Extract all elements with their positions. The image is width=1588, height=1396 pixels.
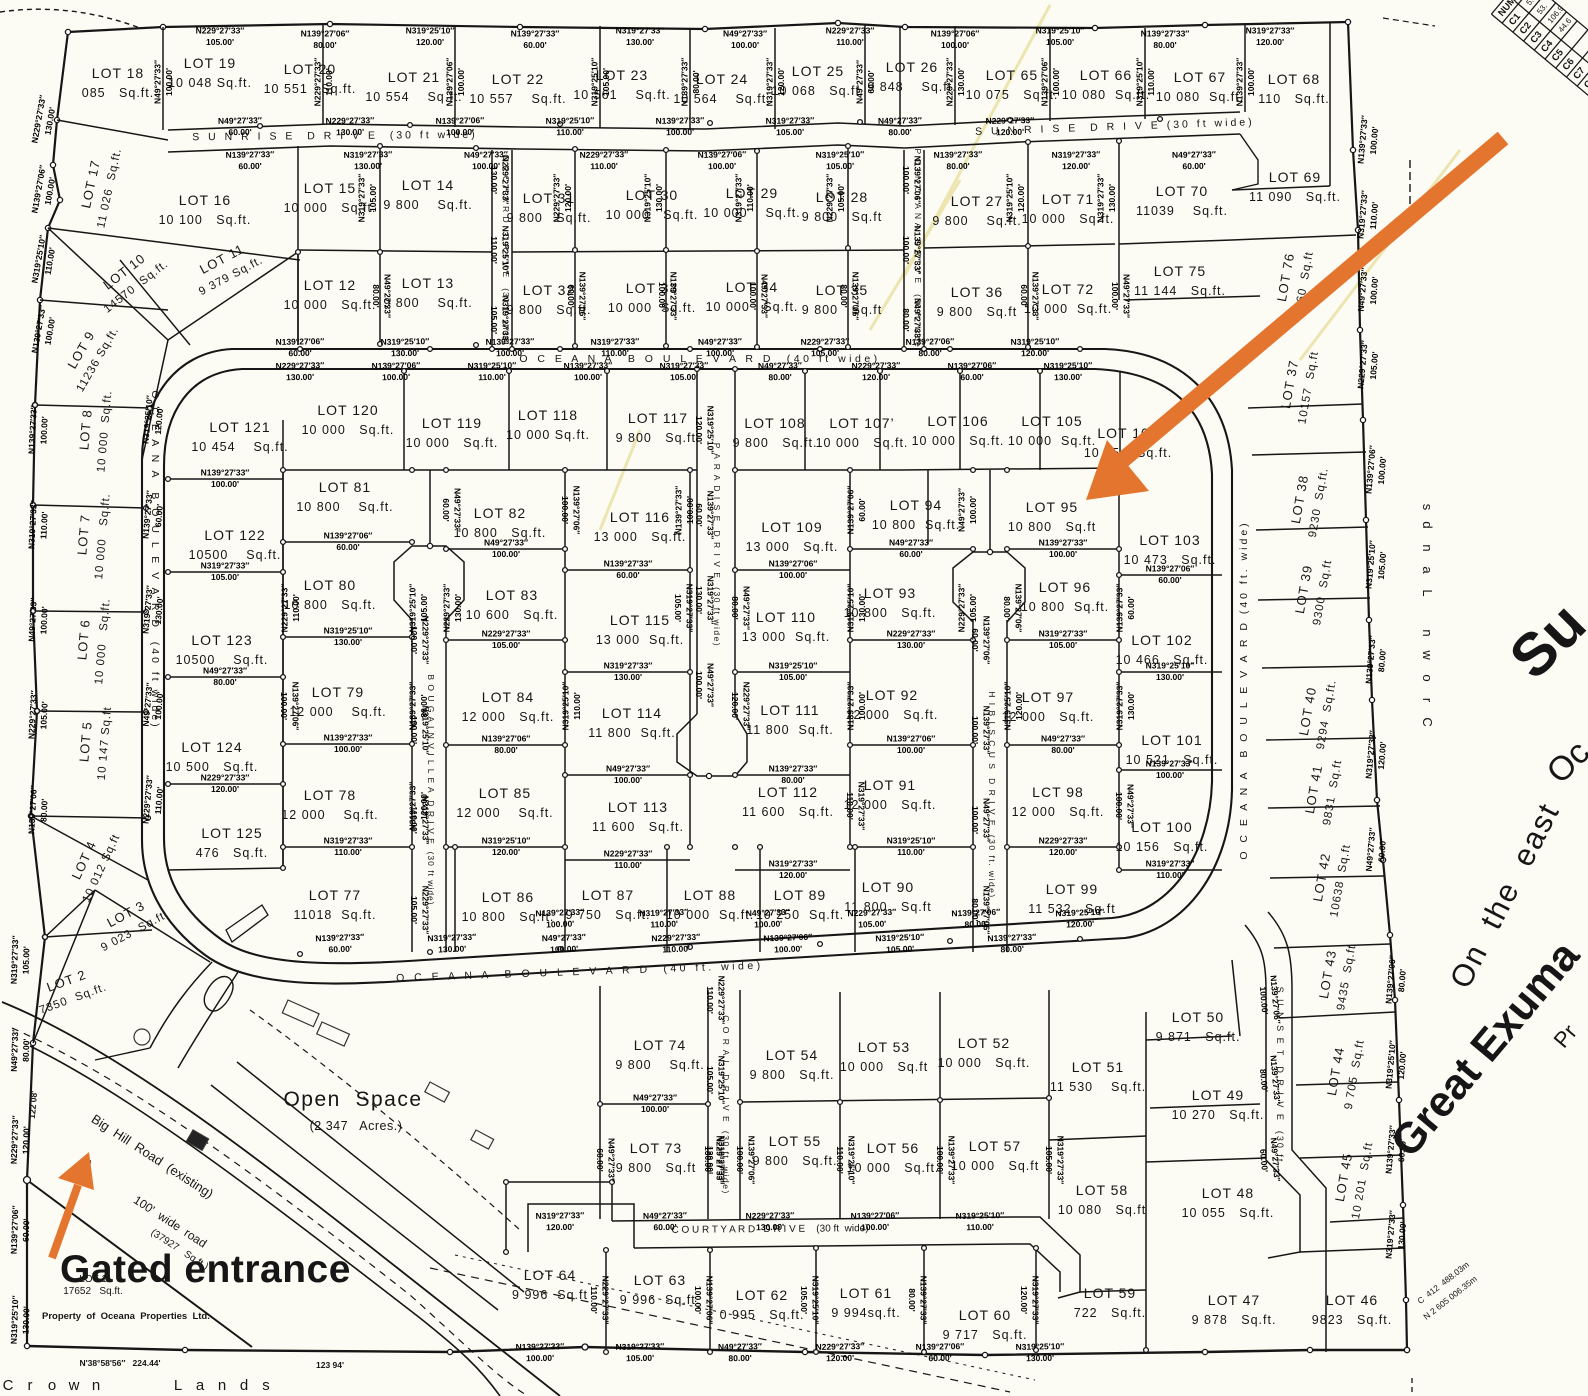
svg-text:80.00': 80.00' xyxy=(494,745,517,755)
svg-text:10 000 Sq.ft.: 10 000 Sq.ft. xyxy=(302,423,395,437)
svg-text:LOT 108: LOT 108 xyxy=(744,415,805,431)
svg-text:N139°27′33″: N139°27′33″ xyxy=(515,1341,564,1352)
svg-text:11 090 Sq.ft.: 11 090 Sq.ft. xyxy=(1249,190,1341,204)
svg-text:LOT 13: LOT 13 xyxy=(402,275,454,291)
svg-text:N319°27′33″: N319°27′33″ xyxy=(324,836,373,846)
svg-text:476 Sq.ft.: 476 Sq.ft. xyxy=(196,846,268,860)
svg-text:N319°25′10″: N319°25′10″ xyxy=(955,1210,1004,1221)
svg-text:N319°25′10″: N319°25′10″ xyxy=(1015,1341,1064,1352)
svg-text:LOT 12: LOT 12 xyxy=(304,277,356,293)
svg-text:LOT 112: LOT 112 xyxy=(758,784,818,800)
svg-text:LOT 80: LOT 80 xyxy=(304,577,356,593)
svg-text:LOT 50: LOT 50 xyxy=(1172,1009,1224,1025)
svg-text:120.00': 120.00' xyxy=(416,37,444,47)
svg-text:LCT 98: LCT 98 xyxy=(1032,784,1084,800)
svg-text:N229°27′33″: N229°27′33″ xyxy=(715,1136,725,1185)
svg-text:N229°27′33″: N229°27′33″ xyxy=(800,336,849,347)
svg-text:LOT 86: LOT 86 xyxy=(482,889,534,905)
svg-text:130.00': 130.00' xyxy=(438,944,466,955)
svg-text:N49°27′33″: N49°27′33″ xyxy=(607,1138,617,1182)
svg-text:N'38°58'56″ 224.44': N'38°58'56″ 224.44' xyxy=(79,1358,160,1368)
svg-text:105.00': 105.00' xyxy=(886,944,914,955)
svg-text:80.00': 80.00' xyxy=(901,308,911,331)
svg-text:N229°27′33″: N229°27′33″ xyxy=(313,58,323,107)
svg-text:10 500 Sq.ft.: 10 500 Sq.ft. xyxy=(166,760,259,774)
svg-text:LOT 107’: LOT 107’ xyxy=(829,415,894,431)
svg-text:N139°27′33″: N139°27′33″ xyxy=(1031,272,1041,321)
svg-text:10 000 Sq.ft: 10 000 Sq.ft xyxy=(840,1060,928,1074)
svg-text:60.00': 60.00' xyxy=(1258,1148,1270,1172)
svg-text:L: L xyxy=(174,1377,182,1394)
svg-text:80.00': 80.00' xyxy=(1258,1068,1270,1092)
svg-text:LOT 125: LOT 125 xyxy=(201,825,262,841)
svg-text:LOT 22: LOT 22 xyxy=(492,71,544,87)
svg-text:60.00': 60.00' xyxy=(288,348,311,358)
svg-text:LOT 99: LOT 99 xyxy=(1046,881,1098,897)
svg-text:110.00': 110.00' xyxy=(590,161,618,171)
svg-text:110.00': 110.00' xyxy=(745,184,755,212)
svg-text:N139°27′33″: N139°27′33″ xyxy=(315,932,364,944)
svg-text:120.00': 120.00' xyxy=(776,68,786,96)
svg-text:80.00': 80.00' xyxy=(946,161,969,171)
svg-text:9 800 Sq.ft.: 9 800 Sq.ft. xyxy=(383,296,472,310)
svg-text:LOT 101: LOT 101 xyxy=(1141,732,1202,748)
svg-text:LOT 118: LOT 118 xyxy=(518,407,578,423)
svg-text:60.00': 60.00' xyxy=(441,498,451,521)
svg-text:80.00': 80.00' xyxy=(964,919,988,930)
svg-text:60.00': 60.00' xyxy=(928,1353,951,1363)
svg-text:a: a xyxy=(196,1377,205,1394)
svg-text:n: n xyxy=(1420,629,1435,636)
svg-text:N319°25′10″: N319°25′10″ xyxy=(380,336,429,347)
svg-text:120.00': 120.00' xyxy=(492,847,520,857)
svg-text:100.00': 100.00' xyxy=(38,606,49,635)
svg-text:C: C xyxy=(3,1377,14,1394)
svg-text:120.00': 120.00' xyxy=(826,1353,854,1363)
svg-text:r: r xyxy=(28,1377,33,1394)
svg-text:130.00': 130.00' xyxy=(286,372,314,382)
svg-text:LOT 60: LOT 60 xyxy=(959,1307,1011,1323)
svg-text:60.00': 60.00' xyxy=(523,40,546,50)
svg-text:60.00': 60.00' xyxy=(336,542,359,552)
svg-text:N139°27′06″: N139°27′06″ xyxy=(851,272,861,321)
svg-text:13 000 Sq.ft.: 13 000 Sq.ft. xyxy=(594,530,687,544)
svg-text:N229°27′33″: N229°27′33″ xyxy=(604,849,653,859)
svg-text:100.00': 100.00' xyxy=(779,570,807,580)
svg-text:C: C xyxy=(1420,717,1435,726)
svg-text:105.00': 105.00' xyxy=(206,37,234,47)
svg-text:N319°25′10″: N319°25′10″ xyxy=(1135,58,1145,107)
svg-text:9 800 Sq.ft.: 9 800 Sq.ft. xyxy=(615,1058,704,1072)
svg-text:100.00': 100.00' xyxy=(857,692,867,720)
svg-text:N49°27′33″: N49°27′33″ xyxy=(153,60,163,104)
svg-text:130.00': 130.00' xyxy=(336,127,364,137)
svg-text:10 557 Sq.ft.: 10 557 Sq.ft. xyxy=(469,92,566,106)
svg-text:N49°27′33″: N49°27′33″ xyxy=(9,1028,21,1072)
svg-text:105.00': 105.00' xyxy=(601,68,611,96)
svg-text:100.00': 100.00' xyxy=(1051,68,1061,96)
svg-text:11 800 Sq.ft.: 11 800 Sq.ft. xyxy=(588,726,675,740)
svg-text:LOT 51: LOT 51 xyxy=(1072,1059,1124,1075)
svg-text:60.00': 60.00' xyxy=(153,503,165,527)
svg-text:N319°27′33″: N319°27′33″ xyxy=(408,782,418,831)
svg-text:LOT 91: LOT 91 xyxy=(864,777,916,793)
svg-text:w: w xyxy=(68,1377,80,1394)
svg-text:N319°25′10″: N319°25′10″ xyxy=(501,226,511,275)
svg-text:105.00': 105.00' xyxy=(670,372,698,382)
svg-text:100.00': 100.00' xyxy=(861,1222,889,1232)
svg-text:9 996 Sq.ft.: 9 996 Sq.ft. xyxy=(620,1293,700,1307)
svg-text:11018 Sq.ft.: 11018 Sq.ft. xyxy=(294,908,377,922)
svg-text:N139°27′06″: N139°27′06″ xyxy=(482,734,531,744)
svg-text:9 717 Sq.ft.: 9 717 Sq.ft. xyxy=(943,1328,1028,1342)
svg-text:100.00': 100.00' xyxy=(546,919,574,930)
svg-text:80.00': 80.00' xyxy=(1396,968,1408,992)
svg-text:60.00': 60.00' xyxy=(616,570,639,580)
svg-text:12 000 Sq.ft.: 12 000 Sq.ft. xyxy=(1012,805,1105,819)
svg-text:N229°27′33″: N229°27′33″ xyxy=(442,584,452,633)
svg-text:100.00': 100.00' xyxy=(941,40,969,50)
svg-text:LOT 88: LOT 88 xyxy=(684,887,736,903)
svg-text:N319°27′33″: N319°27′33″ xyxy=(1056,1136,1066,1185)
svg-text:60.00': 60.00' xyxy=(328,944,352,955)
svg-text:LOT 123: LOT 123 xyxy=(191,632,252,648)
svg-text:N49°27′33″: N49°27′33″ xyxy=(203,666,247,676)
svg-text:100.00': 100.00' xyxy=(1246,68,1256,96)
svg-text:N139°27′06″: N139°27′06″ xyxy=(951,907,1000,919)
svg-text:N139°27′33″: N139°27′33″ xyxy=(1039,538,1088,548)
svg-text:N139°27′33″: N139°27′33″ xyxy=(511,29,560,39)
svg-text:110.00': 110.00' xyxy=(835,1146,845,1174)
svg-text:N319°27′33″: N319°27′33″ xyxy=(535,1210,584,1221)
svg-text:N319°27′33″: N319°27′33″ xyxy=(1039,629,1088,639)
svg-text:105.00': 105.00' xyxy=(968,594,978,622)
svg-text:LOT 106: LOT 106 xyxy=(927,413,988,429)
svg-text:100.00': 100.00' xyxy=(694,671,704,699)
svg-text:N139°27′33″: N139°27′33″ xyxy=(225,149,274,160)
svg-text:80.00': 80.00' xyxy=(907,1288,917,1311)
svg-text:N139°27′06″: N139°27′06″ xyxy=(913,156,923,205)
svg-text:LOT 83: LOT 83 xyxy=(486,587,538,603)
svg-text:100.00': 100.00' xyxy=(968,496,978,524)
svg-text:100.00': 100.00' xyxy=(456,68,466,96)
svg-text:120.00': 120.00' xyxy=(862,372,890,382)
svg-text:N139°27′06″: N139°27′06″ xyxy=(578,272,588,321)
svg-text:N139°27′33″: N139°27′33″ xyxy=(680,58,690,107)
svg-text:N319°25′10″: N319°25′10″ xyxy=(1010,336,1059,347)
svg-text:N319°25′10″: N319°25′10″ xyxy=(846,584,856,633)
svg-text:LOT 15: LOT 15 xyxy=(304,180,356,196)
svg-text:120.00': 120.00' xyxy=(563,184,573,212)
svg-text:10 473 Sq.ft.: 10 473 Sq.ft. xyxy=(1124,553,1217,567)
svg-text:0 995 Sq.ft.: 0 995 Sq.ft. xyxy=(720,1308,805,1322)
svg-text:130.00': 130.00' xyxy=(956,68,966,96)
svg-text:100.00': 100.00' xyxy=(901,236,911,264)
svg-text:N229°27′33″: N229°27′33″ xyxy=(825,174,835,223)
svg-text:N139°27′33″: N139°27′33″ xyxy=(324,733,373,743)
svg-text:N139°27′06″: N139°27′06″ xyxy=(371,360,420,371)
svg-text:LOT 52: LOT 52 xyxy=(958,1035,1010,1051)
svg-text:N139°27′06″: N139°27′06″ xyxy=(1014,584,1024,633)
svg-text:N229°27′33″: N229°27′33″ xyxy=(847,907,896,919)
svg-text:11 600 Sq.ft.: 11 600 Sq.ft. xyxy=(592,820,684,834)
svg-text:60.00': 60.00' xyxy=(1126,596,1136,619)
svg-text:130.00': 130.00' xyxy=(453,594,463,622)
svg-text:120.00': 120.00' xyxy=(730,692,740,720)
svg-text:110.00': 110.00' xyxy=(478,372,506,382)
svg-text:N49°27′33″: N49°27′33″ xyxy=(218,115,262,126)
svg-text:LOT 116: LOT 116 xyxy=(610,509,670,525)
svg-text:N139°27′33″: N139°27′33″ xyxy=(913,226,923,275)
svg-text:N319°25′10″: N319°25′10″ xyxy=(1043,360,1092,371)
svg-text:110.00': 110.00' xyxy=(589,1286,599,1314)
svg-text:110.00': 110.00' xyxy=(966,1222,994,1232)
svg-text:60.00': 60.00' xyxy=(866,70,876,93)
svg-text:N229°27′33″: N229°27′33″ xyxy=(717,976,727,1025)
svg-text:LOT 110: LOT 110 xyxy=(756,609,816,625)
svg-text:100.00': 100.00' xyxy=(708,161,736,171)
svg-text:L: L xyxy=(1420,589,1435,596)
svg-text:100.00': 100.00' xyxy=(1156,770,1184,780)
svg-text:120.00': 120.00' xyxy=(1066,919,1094,930)
svg-text:N229°27′33″: N229°27′33″ xyxy=(651,932,700,944)
svg-text:LOT 113: LOT 113 xyxy=(608,799,668,815)
svg-text:N319°27′33″: N319°27′33″ xyxy=(1246,26,1295,36)
svg-text:LOT 109: LOT 109 xyxy=(761,519,822,535)
svg-text:s: s xyxy=(262,1377,270,1394)
svg-text:60.00': 60.00' xyxy=(1376,838,1388,862)
svg-text:100.00': 100.00' xyxy=(641,1104,669,1114)
svg-text:N319°25′10″: N319°25′10″ xyxy=(1003,682,1013,731)
svg-text:80.00': 80.00' xyxy=(1376,648,1388,672)
svg-text:120.00': 120.00' xyxy=(694,416,704,444)
svg-text:LOT 64: LOT 64 xyxy=(524,1267,576,1283)
svg-text:N319°27′33″: N319°27′33″ xyxy=(706,576,716,625)
svg-text:100.00': 100.00' xyxy=(774,944,802,955)
svg-text:60.00': 60.00' xyxy=(899,549,922,559)
svg-text:80.00': 80.00' xyxy=(313,40,336,50)
svg-text:N319°25′10″: N319°25′10″ xyxy=(875,932,924,944)
svg-text:11 800 Sq.ft.: 11 800 Sq.ft. xyxy=(746,723,833,737)
svg-text:100.00': 100.00' xyxy=(279,692,289,720)
svg-text:N319°27′33″: N319°27′33″ xyxy=(734,174,744,223)
svg-text:722 Sq.ft.: 722 Sq.ft. xyxy=(1074,1306,1146,1320)
svg-text:120.00': 120.00' xyxy=(1256,37,1284,47)
svg-text:N139°27′06″: N139°27′06″ xyxy=(435,115,484,126)
svg-text:N229°27′33″: N229°27′33″ xyxy=(280,584,290,633)
svg-text:N49°27′33″: N49°27′33″ xyxy=(1126,784,1136,828)
svg-text:N49°27′33″: N49°27′33″ xyxy=(718,1341,762,1352)
svg-text:110.00': 110.00' xyxy=(601,348,629,358)
svg-text:11 530 Sq.ft.: 11 530 Sq.ft. xyxy=(1050,1080,1146,1094)
svg-text:LOT 53: LOT 53 xyxy=(858,1039,910,1055)
svg-text:N49°27′33″: N49°27′33″ xyxy=(723,29,767,39)
svg-text:N319°27′33″: N319°27′33″ xyxy=(427,932,476,944)
svg-text:N229°27′33″: N229°27′33″ xyxy=(745,1210,794,1221)
svg-text:LOT 69: LOT 69 xyxy=(1269,169,1321,185)
svg-text:100.00': 100.00' xyxy=(211,479,239,489)
svg-text:100.00': 100.00' xyxy=(1049,549,1077,559)
svg-text:110.00': 110.00' xyxy=(38,511,49,539)
svg-text:10 270 Sq.ft.: 10 270 Sq.ft. xyxy=(1172,1108,1265,1122)
svg-text:60.00': 60.00' xyxy=(857,498,867,521)
svg-text:LOT 96: LOT 96 xyxy=(1039,579,1091,595)
svg-text:80.00': 80.00' xyxy=(839,284,849,307)
svg-text:LOT 71: LOT 71 xyxy=(1042,191,1094,207)
svg-text:60.00': 60.00' xyxy=(970,628,980,651)
svg-text:LOT 114: LOT 114 xyxy=(602,705,662,721)
svg-text:N229°27′33″: N229°27′33″ xyxy=(985,115,1034,126)
svg-text:9 800 Sq.ft: 9 800 Sq.ft xyxy=(616,1161,696,1175)
svg-text:123 94': 123 94' xyxy=(316,1360,344,1370)
svg-text:130.00': 130.00' xyxy=(1156,672,1184,682)
svg-text:LOT 73: LOT 73 xyxy=(630,1140,682,1156)
svg-text:N229°27′33″: N229°27′33″ xyxy=(887,629,936,639)
svg-text:130.00': 130.00' xyxy=(1126,692,1136,720)
svg-text:LOT 72: LOT 72 xyxy=(1042,281,1094,297)
svg-text:N139°27′06″: N139°27′06″ xyxy=(572,486,582,535)
svg-text:LOT 59: LOT 59 xyxy=(1084,1285,1136,1301)
svg-text:10 466 Sq.ft.: 10 466 Sq.ft. xyxy=(1116,653,1209,667)
svg-text:105.00': 105.00' xyxy=(409,896,419,924)
svg-text:LOT 67: LOT 67 xyxy=(1174,69,1226,85)
svg-text:100.00': 100.00' xyxy=(550,944,578,955)
svg-text:N319°27′33″: N319°27′33″ xyxy=(1146,859,1195,869)
svg-text:10 055 Sq.ft.: 10 055 Sq.ft. xyxy=(1182,1206,1275,1220)
svg-text:105.00': 105.00' xyxy=(826,161,854,171)
svg-text:N319°25′10″: N319°25′10″ xyxy=(1055,907,1104,919)
svg-text:N229°27′33″: N229°27′33″ xyxy=(815,1341,864,1352)
svg-text:LOT 95: LOT 95 xyxy=(1026,499,1078,515)
svg-text:N49°27′33″: N49°27′33″ xyxy=(1122,274,1132,318)
svg-text:9 800 Sq.ft.: 9 800 Sq.ft. xyxy=(733,436,818,450)
svg-text:LOT 117: LOT 117 xyxy=(628,410,688,426)
svg-text:100.00': 100.00' xyxy=(706,348,734,358)
svg-text:LOT 56: LOT 56 xyxy=(867,1140,919,1156)
svg-text:a: a xyxy=(1420,566,1435,574)
svg-text:120.00': 120.00' xyxy=(1062,161,1090,171)
svg-text:80.00': 80.00' xyxy=(213,677,236,687)
svg-text:r: r xyxy=(1420,698,1435,703)
svg-text:n: n xyxy=(1420,544,1435,551)
svg-text:80.00': 80.00' xyxy=(768,372,791,382)
svg-text:105.00': 105.00' xyxy=(705,1066,715,1094)
svg-text:120.00': 120.00' xyxy=(211,784,239,794)
svg-text:60.00': 60.00' xyxy=(228,127,251,137)
svg-text:N139°27′06″: N139°27′06″ xyxy=(769,559,818,569)
svg-text:LOT 46: LOT 46 xyxy=(1326,1292,1378,1308)
svg-text:N139°27′33″: N139°27′33″ xyxy=(987,932,1036,944)
svg-text:n: n xyxy=(92,1377,100,1394)
svg-text:105.00': 105.00' xyxy=(836,184,846,212)
svg-text:N49°27′33″: N49°27′33″ xyxy=(383,274,393,318)
svg-text:13 000 Sq.ft.: 13 000 Sq.ft. xyxy=(596,633,684,647)
svg-text:N139°27′06″: N139°27′06″ xyxy=(324,531,373,541)
svg-text:100.00': 100.00' xyxy=(526,1353,554,1363)
svg-text:LOT 90: LOT 90 xyxy=(862,879,914,895)
svg-text:80.00': 80.00' xyxy=(1153,40,1176,50)
svg-text:130.00': 130.00' xyxy=(694,586,704,614)
svg-text:100.00': 100.00' xyxy=(164,68,174,96)
svg-text:N319°27′33″: N319°27′33″ xyxy=(590,336,639,347)
svg-text:120.00': 120.00' xyxy=(1049,847,1077,857)
svg-text:N49°27′33″: N49°27′33″ xyxy=(1041,734,1085,744)
svg-text:N319°25′10″: N319°25′10″ xyxy=(887,836,936,846)
svg-text:105.00': 105.00' xyxy=(211,572,239,582)
svg-text:N139°27′06″: N139°27′06″ xyxy=(763,932,812,944)
svg-text:100.00': 100.00' xyxy=(693,1286,703,1314)
svg-text:10 561 Sq.ft.: 10 561 Sq.ft. xyxy=(573,88,670,102)
svg-text:9 800 Sq.ft: 9 800 Sq.ft xyxy=(937,305,1017,319)
svg-text:120.00': 120.00' xyxy=(1021,348,1049,358)
svg-text:LOT 55: LOT 55 xyxy=(769,1133,821,1149)
svg-text:O C E A N A B O U L E V A R D: O C E A N A B O U L E V A R D (40 ft. wi… xyxy=(1238,520,1250,859)
svg-text:LOT 100: LOT 100 xyxy=(1131,819,1192,835)
svg-text:13 000 Sq.ft.: 13 000 Sq.ft. xyxy=(742,630,830,644)
svg-text:10 551 Sq.ft.: 10 551 Sq.ft. xyxy=(264,82,357,96)
svg-text:N319°27′33″: N319°27′33″ xyxy=(343,149,392,160)
svg-text:N139°27′33″: N139°27′33″ xyxy=(201,468,250,478)
svg-text:10 454 Sq.ft.: 10 454 Sq.ft. xyxy=(191,440,288,454)
svg-text:LOT 57: LOT 57 xyxy=(969,1138,1021,1154)
svg-text:130.00': 130.00' xyxy=(1026,1353,1054,1363)
svg-text:110.00': 110.00' xyxy=(845,792,855,820)
svg-text:110.00': 110.00' xyxy=(614,860,642,870)
svg-text:N49°27′33″: N49°27′33″ xyxy=(453,488,463,532)
svg-text:N319°27′33″: N319°27′33″ xyxy=(357,174,367,223)
svg-text:100.00': 100.00' xyxy=(560,496,570,524)
svg-text:N139°27′33″: N139°27′33″ xyxy=(563,360,612,371)
svg-text:N139°27′33″: N139°27′33″ xyxy=(947,1136,957,1185)
svg-text:N319°27′33″: N319°27′33″ xyxy=(765,115,814,126)
svg-text:N229°27′33″: N229°27′33″ xyxy=(325,115,374,126)
svg-text:LOT 105: LOT 105 xyxy=(1021,413,1082,429)
svg-text:100.00': 100.00' xyxy=(334,744,362,754)
svg-text:130.00': 130.00' xyxy=(897,640,925,650)
svg-text:LOT 103: LOT 103 xyxy=(1139,532,1200,548)
svg-text:60.00': 60.00' xyxy=(238,161,261,171)
svg-text:LOT 102: LOT 102 xyxy=(1131,632,1192,648)
svg-text:N49°27′33″: N49°27′33″ xyxy=(698,336,742,347)
svg-text:N229°27′33″: N229°27′33″ xyxy=(275,360,324,371)
svg-text:105.00': 105.00' xyxy=(779,672,807,682)
svg-text:LOT 77: LOT 77 xyxy=(309,887,361,903)
svg-text:N139°27′33″: N139°27′33″ xyxy=(1141,29,1190,39)
svg-text:100.00': 100.00' xyxy=(897,745,925,755)
svg-text:60.00': 60.00' xyxy=(566,284,576,307)
svg-text:N139°27′06″: N139°27′06″ xyxy=(982,616,992,665)
svg-text:9 800 Sq.ft.: 9 800 Sq.ft. xyxy=(383,198,472,212)
svg-text:80.00': 80.00' xyxy=(371,284,381,307)
svg-text:110.00': 110.00' xyxy=(572,692,582,720)
svg-text:O C E A N A B O U L E V A R D: O C E A N A B O U L E V A R D (40 ft wid… xyxy=(149,390,161,729)
svg-text:100.00': 100.00' xyxy=(685,496,695,524)
svg-text:110.00': 110.00' xyxy=(1156,870,1184,880)
svg-text:120.00': 120.00' xyxy=(1016,184,1026,212)
svg-text:10 000 Sq.ft.: 10 000 Sq.ft. xyxy=(284,298,377,312)
svg-text:100.00': 100.00' xyxy=(666,127,694,137)
svg-text:N139°27′33″: N139°27′33″ xyxy=(408,682,418,731)
svg-text:N49°27′33″: N49°27′33″ xyxy=(760,274,770,318)
svg-text:N319°25′10″: N319°25′10″ xyxy=(545,115,594,126)
svg-text:N139°27′33″: N139°27′33″ xyxy=(604,559,653,569)
svg-text:10 100 Sq.ft.: 10 100 Sq.ft. xyxy=(159,213,252,227)
svg-text:105.00': 105.00' xyxy=(21,946,32,974)
svg-text:N139°27′06″: N139°27′06″ xyxy=(850,1210,899,1221)
svg-text:80.00': 80.00' xyxy=(1002,596,1012,619)
svg-text:N319°25′10″: N319°25′10″ xyxy=(717,1056,727,1105)
svg-text:LOT 124: LOT 124 xyxy=(181,739,242,755)
